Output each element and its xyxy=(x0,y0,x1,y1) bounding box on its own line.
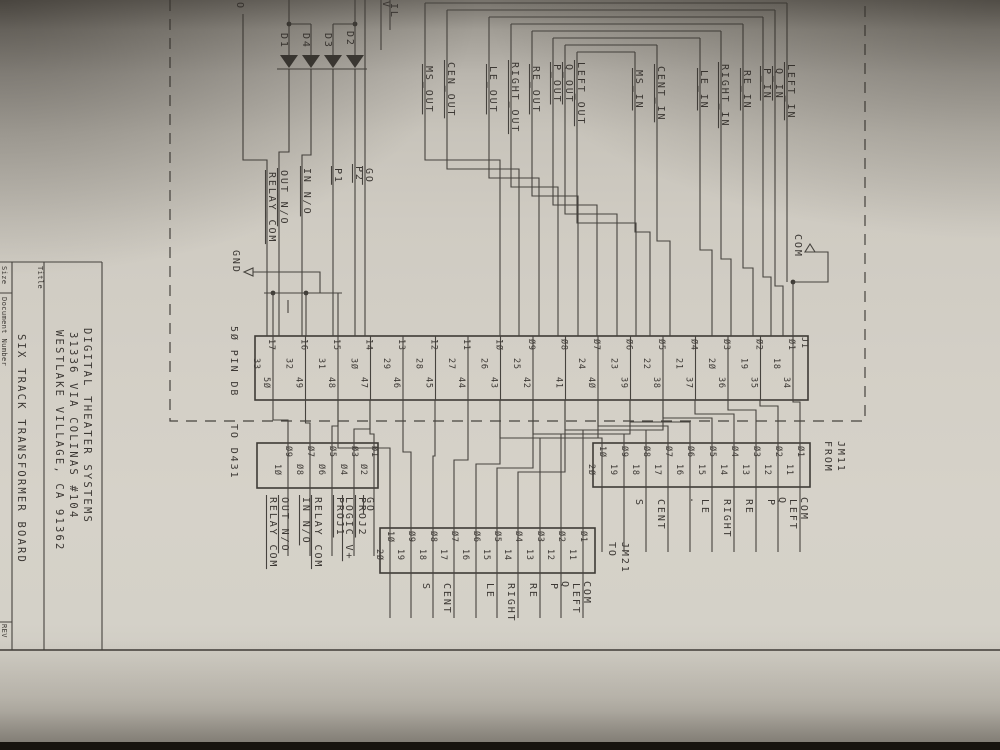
net-label: P xyxy=(765,499,776,507)
j1-designator: J1 xyxy=(799,337,809,349)
company-city: WESTLAKE VILLAGE, CA 91362 xyxy=(53,330,65,552)
wire xyxy=(403,400,411,528)
pin-number: 2Ø xyxy=(586,464,597,476)
pin-number: Ø5 xyxy=(327,446,338,458)
pin-number: 13 xyxy=(524,549,534,561)
net-label: GO xyxy=(363,168,374,184)
jm11-caption-name: JM11 xyxy=(835,441,846,473)
net-label: S xyxy=(420,583,431,591)
net-label: IN_N/O xyxy=(301,168,312,216)
pin-number: Ø4 xyxy=(338,464,349,476)
pin-number: Ø2 xyxy=(754,339,765,351)
pin-number: 48 xyxy=(326,377,336,389)
wire xyxy=(253,272,320,293)
pin-number: Ø5 xyxy=(707,446,718,458)
diode-label: D2 xyxy=(344,31,355,47)
wire xyxy=(447,10,519,336)
net-label: RIGHT xyxy=(721,499,732,539)
net-label: Q xyxy=(776,497,787,505)
diode-d3-icon xyxy=(324,55,342,68)
pin-number: Ø7 xyxy=(305,446,316,458)
net-label: P xyxy=(548,583,559,591)
pin-number: 4Ø xyxy=(586,377,597,389)
wire xyxy=(433,400,435,528)
pin-number: 11 xyxy=(784,464,794,476)
net-label: LEFT_OUT xyxy=(575,62,586,125)
pin-number: Ø3 xyxy=(721,339,732,351)
pin-number: 47 xyxy=(359,377,369,389)
wire xyxy=(497,400,533,528)
pin-number: Ø4 xyxy=(689,339,700,351)
pin-number: 2Ø xyxy=(706,358,717,370)
pin-number: 13 xyxy=(740,464,750,476)
net-label: LEFT_IN xyxy=(785,64,796,119)
com-label: COM xyxy=(792,234,803,258)
pin-number: 14 xyxy=(364,339,374,351)
pin-number: 23 xyxy=(609,358,619,370)
pin-number: Ø6 xyxy=(471,531,482,543)
pin-number: 1Ø xyxy=(385,531,396,543)
junction-dots xyxy=(271,22,796,296)
pin-number: 41 xyxy=(554,377,564,389)
net-label: MS_OUT xyxy=(423,66,434,114)
net-label: RE_OUT xyxy=(530,66,541,114)
pin-number: 26 xyxy=(479,358,489,370)
wire xyxy=(518,400,565,528)
net-label: CENT xyxy=(441,583,452,615)
pin-number: Ø5 xyxy=(656,339,667,351)
document-number-label: Document Number xyxy=(0,297,8,366)
pin-number: Ø7 xyxy=(663,446,674,458)
pin-number: Ø8 xyxy=(428,531,439,543)
company-address: 31336 VIA COLINAS #104 xyxy=(67,332,79,519)
diode-label: D3 xyxy=(322,33,333,49)
pin-number: 13 xyxy=(396,339,406,351)
pin-number: 28 xyxy=(414,358,424,370)
net-label: COM xyxy=(581,581,592,605)
pin-number: Ø8 xyxy=(641,446,652,458)
d431-caption: TO D431 xyxy=(228,424,239,479)
net-label: MS_IN xyxy=(633,70,644,110)
pin-number: 5Ø xyxy=(261,377,272,389)
gnd-label: GND xyxy=(230,250,241,274)
pin-number: 19 xyxy=(739,358,749,370)
pin-number: Ø9 xyxy=(283,446,294,458)
net-label: RELAY COM xyxy=(267,497,278,568)
net-label: CEN_OUT xyxy=(445,62,456,117)
pin-number: 1Ø xyxy=(272,464,283,476)
pin-number: Ø9 xyxy=(619,446,630,458)
net-label: RIGHT_IN xyxy=(719,64,730,127)
pin-number: 42 xyxy=(521,377,531,389)
pin-number: 12 xyxy=(545,549,555,561)
pin-number: Ø3 xyxy=(535,531,546,543)
pin-number: Ø9 xyxy=(406,531,417,543)
title-label: Title xyxy=(36,266,44,289)
pin-number: Ø3 xyxy=(349,446,360,458)
net-label: RELAY_COM xyxy=(266,172,277,243)
net-label: Q xyxy=(559,581,570,589)
pin-number: 37 xyxy=(684,377,694,389)
pin-number: Ø4 xyxy=(729,446,740,458)
pin-number: 16 xyxy=(460,549,470,561)
wire xyxy=(370,400,374,443)
net-label: GO xyxy=(364,497,375,513)
pin-number: 15 xyxy=(481,549,491,561)
diode-d2-icon xyxy=(346,55,364,68)
pin-number: Ø1 xyxy=(786,339,797,351)
pin-number: Ø6 xyxy=(624,339,635,351)
diode-label: D1 xyxy=(278,33,289,49)
net-label: P1 xyxy=(332,168,343,184)
pin-number: 29 xyxy=(381,358,391,370)
pin-number: 44 xyxy=(456,377,466,389)
diode-group: D1 D4 D3 D2 xyxy=(278,31,364,68)
wire xyxy=(243,14,267,336)
diode-d4-icon xyxy=(302,55,320,68)
pin-number: 14 xyxy=(502,549,512,561)
size-label: Size xyxy=(0,266,8,284)
pin-number: 18 xyxy=(630,464,640,476)
pin-number: 22 xyxy=(641,358,651,370)
pin-number: Ø8 xyxy=(559,339,570,351)
pin-number: 12 xyxy=(762,464,772,476)
pin-number: 43 xyxy=(489,377,499,389)
pin-number: 38 xyxy=(651,377,661,389)
net-label: S xyxy=(633,499,644,507)
diode-label: D4 xyxy=(300,33,311,49)
pin-number: 46 xyxy=(391,377,401,389)
wire xyxy=(454,400,468,528)
net-label: LE_IN xyxy=(698,70,709,110)
pin-number: 15 xyxy=(331,339,341,351)
j1-type-label: 5Ø PIN DB xyxy=(228,326,240,397)
schematic-photo: Title Size Document Number REV DIGITAL T… xyxy=(0,0,1000,750)
schematic-drawing: Title Size Document Number REV DIGITAL T… xyxy=(0,0,1000,742)
pin-number: 16 xyxy=(299,339,309,351)
wire xyxy=(476,400,500,528)
net-label: RE_IN xyxy=(741,70,752,110)
pin-number: 18 xyxy=(771,358,781,370)
com-arrow-icon xyxy=(805,244,815,252)
net-label: RIGHT xyxy=(505,583,516,623)
pin-number: Ø2 xyxy=(556,531,567,543)
pin-number: 34 xyxy=(781,377,791,389)
pin-number: Ø1 xyxy=(578,531,589,543)
net-label: LEFT xyxy=(787,499,798,531)
pin-number: 1Ø xyxy=(494,339,505,351)
pin-number: Ø9 xyxy=(526,339,537,351)
pin-number: 39 xyxy=(619,377,629,389)
rev-label: REV xyxy=(0,624,8,638)
sheet-title: SIX TRACK TRANSFORMER BOARD xyxy=(15,334,27,564)
pin-number: 15 xyxy=(696,464,706,476)
pin-number: 17 xyxy=(438,549,448,561)
pin-number: 19 xyxy=(395,549,405,561)
pin-number: 32 xyxy=(284,358,294,370)
net-label: OUT N/O xyxy=(279,497,290,552)
net-label: RIGHT_OUT xyxy=(509,62,520,133)
pin-number: Ø7 xyxy=(591,339,602,351)
net-label: Q_IN xyxy=(773,68,784,100)
wire xyxy=(775,10,783,336)
pin-number: 2Ø xyxy=(374,549,385,561)
pin-number: 17 xyxy=(652,464,662,476)
pin-number: Ø6 xyxy=(685,446,696,458)
net-label: CENT_IN xyxy=(655,66,666,121)
pin-number: 36 xyxy=(716,377,726,389)
pin-number: 31 xyxy=(316,358,326,370)
net-flags: GND COM xyxy=(230,234,815,276)
net-label: Q_OUT xyxy=(563,64,574,104)
company-name: DIGITAL THEATER SYSTEMS xyxy=(81,328,93,524)
pin-number: 25 xyxy=(511,358,521,370)
pin-number: 11 xyxy=(461,339,471,351)
pin-number: 1Ø xyxy=(597,446,608,458)
net-label: LE_OUT xyxy=(487,66,498,114)
net-label: . xyxy=(688,497,699,505)
pin-number: 21 xyxy=(674,358,684,370)
net-label: RE xyxy=(743,499,754,515)
net-label: IN N/O xyxy=(300,497,311,545)
pin-number: 33 xyxy=(251,358,261,370)
diode-d1-icon xyxy=(280,55,298,68)
wire xyxy=(630,400,690,443)
jm11-caption-from: FROM xyxy=(822,441,833,473)
pin-number: 11 xyxy=(567,549,577,561)
edge-partial-label: O xyxy=(234,2,245,10)
net-label: COM xyxy=(798,497,809,521)
pin-number: 18 xyxy=(417,549,427,561)
pin-number: 49 xyxy=(294,377,304,389)
net-label: RELAY COM xyxy=(312,497,323,568)
pin-number: 16 xyxy=(674,464,684,476)
net-label: LEFT xyxy=(570,583,581,615)
gnd-arrow-icon xyxy=(244,268,253,276)
wire xyxy=(763,17,771,336)
pin-number: 19 xyxy=(608,464,618,476)
pin-number: 24 xyxy=(576,358,586,370)
net-label: RE xyxy=(527,583,538,599)
net-label: P_OUT xyxy=(551,64,562,104)
pin-number: Ø8 xyxy=(294,464,305,476)
pin-number: 45 xyxy=(424,377,434,389)
pin-number: 35 xyxy=(749,377,759,389)
pin-number: Ø1 xyxy=(369,446,380,458)
net-label: CENT xyxy=(655,499,666,531)
pin-number: Ø5 xyxy=(492,531,503,543)
pin-number: Ø3 xyxy=(751,446,762,458)
pin-number: Ø1 xyxy=(795,446,806,458)
pin-number: Ø2 xyxy=(773,446,784,458)
pin-number: Ø2 xyxy=(358,464,369,476)
pin-number: Ø6 xyxy=(316,464,327,476)
pin-number: Ø4 xyxy=(513,531,524,543)
pin-number: Ø7 xyxy=(449,531,460,543)
jm21-caption-to: TO xyxy=(606,542,617,558)
pin-number: 14 xyxy=(718,464,728,476)
net-label: LE xyxy=(699,499,710,515)
net-label: P_IN xyxy=(761,68,772,100)
pin-number: 17 xyxy=(266,339,276,351)
net-label: LOGIC V+ xyxy=(343,497,354,560)
net-label: OUT_N/O xyxy=(278,170,289,225)
pin-number: 12 xyxy=(429,339,439,351)
pin-number: 3Ø xyxy=(349,358,360,370)
net-label: LE xyxy=(484,583,495,599)
wire xyxy=(332,400,338,443)
pin-number: 27 xyxy=(446,358,456,370)
